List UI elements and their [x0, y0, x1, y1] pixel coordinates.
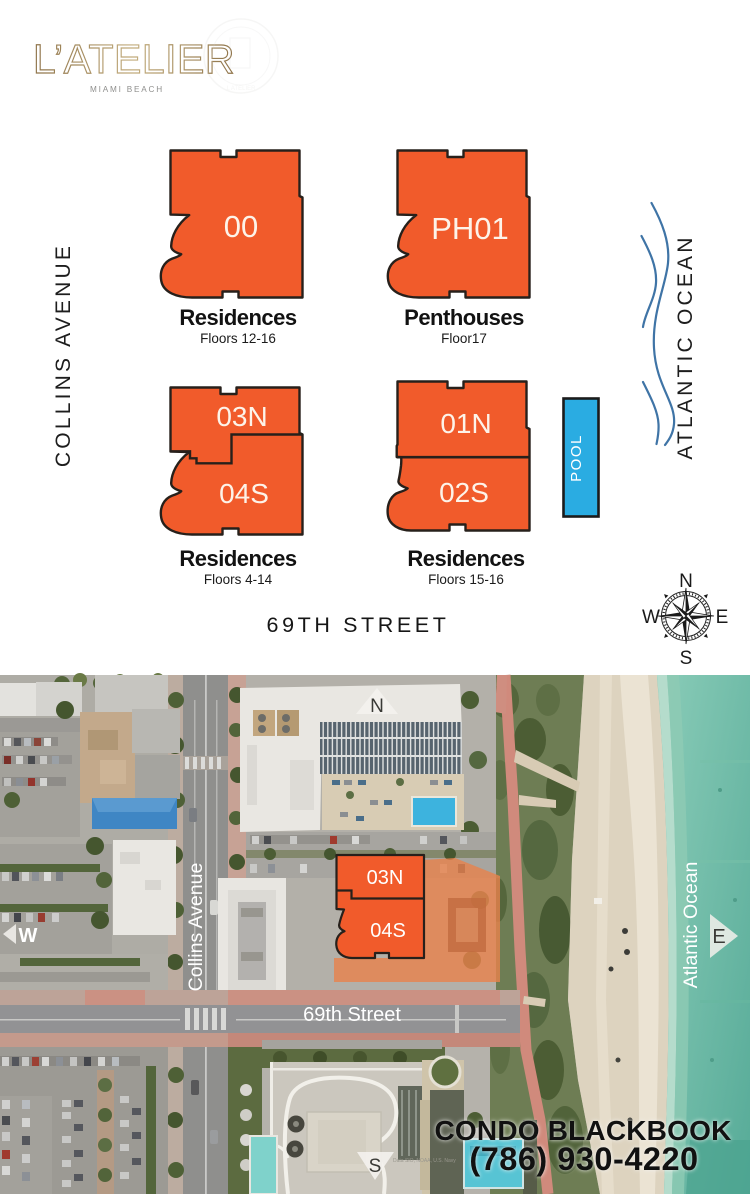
svg-text:04S: 04S: [219, 478, 269, 509]
svg-text:L ATELIER: L ATELIER: [226, 86, 256, 92]
svg-text:Floor17: Floor17: [441, 331, 487, 346]
svg-text:POOL: POOL: [568, 434, 585, 482]
svg-text:Penthouses: Penthouses: [404, 305, 524, 330]
svg-text:Residences: Residences: [179, 546, 297, 571]
svg-text:Collins Avenue: Collins Avenue: [185, 863, 207, 992]
svg-text:PH01: PH01: [431, 211, 509, 246]
svg-text:E: E: [712, 926, 725, 948]
svg-text:Atlantic Ocean: Atlantic Ocean: [680, 862, 702, 989]
svg-text:Residences: Residences: [407, 546, 525, 571]
svg-text:Floors 4-14: Floors 4-14: [204, 572, 273, 587]
svg-text:W: W: [642, 607, 660, 628]
svg-text:Floors 12-16: Floors 12-16: [200, 331, 276, 346]
svg-text:Floors 15-16: Floors 15-16: [428, 572, 504, 587]
svg-text:02S: 02S: [439, 477, 489, 508]
svg-text:W: W: [19, 925, 38, 947]
svg-text:N: N: [679, 571, 693, 592]
svg-text:69th Street: 69th Street: [303, 1004, 401, 1026]
svg-text:03N: 03N: [367, 867, 404, 889]
svg-text:00: 00: [224, 209, 258, 244]
svg-text:E: E: [716, 607, 729, 628]
svg-text:COLLINS AVENUE: COLLINS AVENUE: [52, 243, 75, 467]
svg-text:N: N: [370, 696, 384, 717]
svg-text:03N: 03N: [216, 401, 267, 432]
svg-text:ATLANTIC OCEAN: ATLANTIC OCEAN: [674, 234, 697, 459]
svg-text:S: S: [680, 648, 693, 669]
svg-text:Data SIO, NOAA, U.S. Navy: Data SIO, NOAA, U.S. Navy: [393, 1158, 456, 1164]
svg-text:01N: 01N: [440, 408, 491, 439]
svg-text:69TH STREET: 69TH STREET: [267, 613, 450, 637]
svg-text:(786) 930-4220: (786) 930-4220: [469, 1141, 698, 1177]
svg-text:S: S: [369, 1156, 382, 1177]
svg-text:04S: 04S: [370, 920, 406, 942]
svg-text:Residences: Residences: [179, 305, 297, 330]
svg-text:MIAMI BEACH: MIAMI BEACH: [90, 85, 164, 94]
